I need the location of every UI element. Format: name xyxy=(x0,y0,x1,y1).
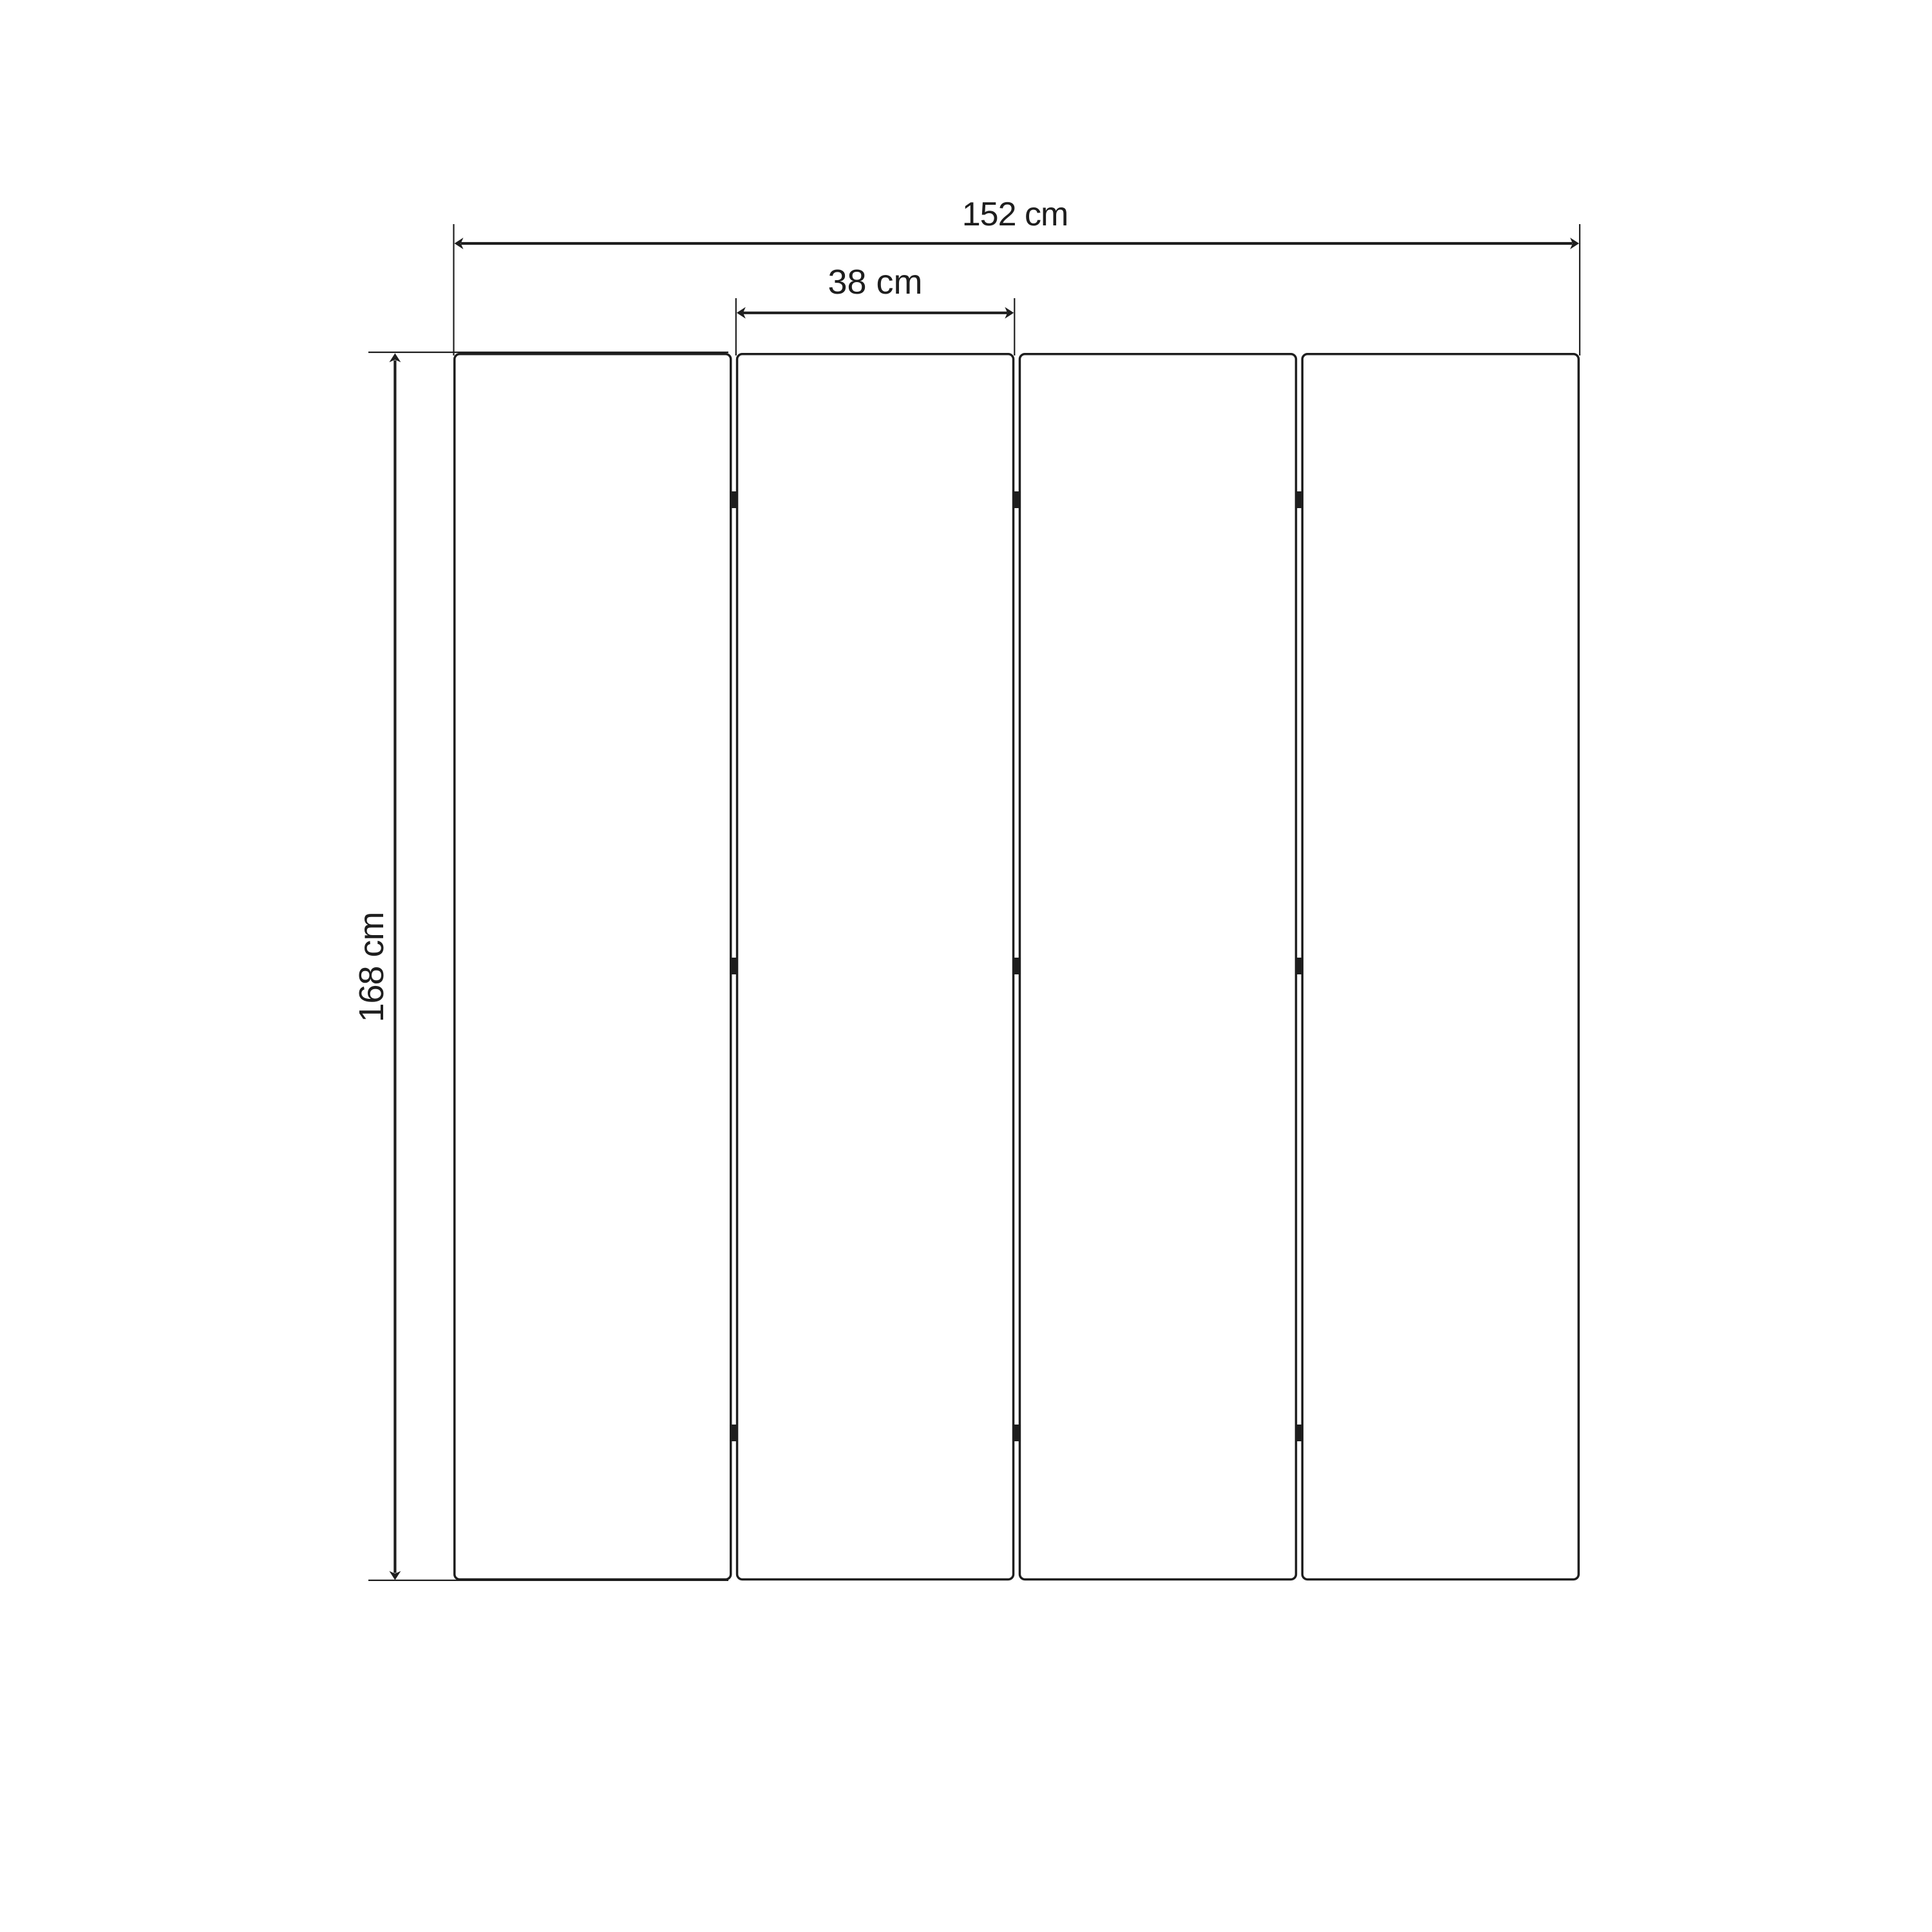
svg-text:168 cm: 168 cm xyxy=(352,912,391,1022)
svg-text:38 cm: 38 cm xyxy=(828,263,922,301)
svg-text:152 cm: 152 cm xyxy=(962,196,1068,233)
